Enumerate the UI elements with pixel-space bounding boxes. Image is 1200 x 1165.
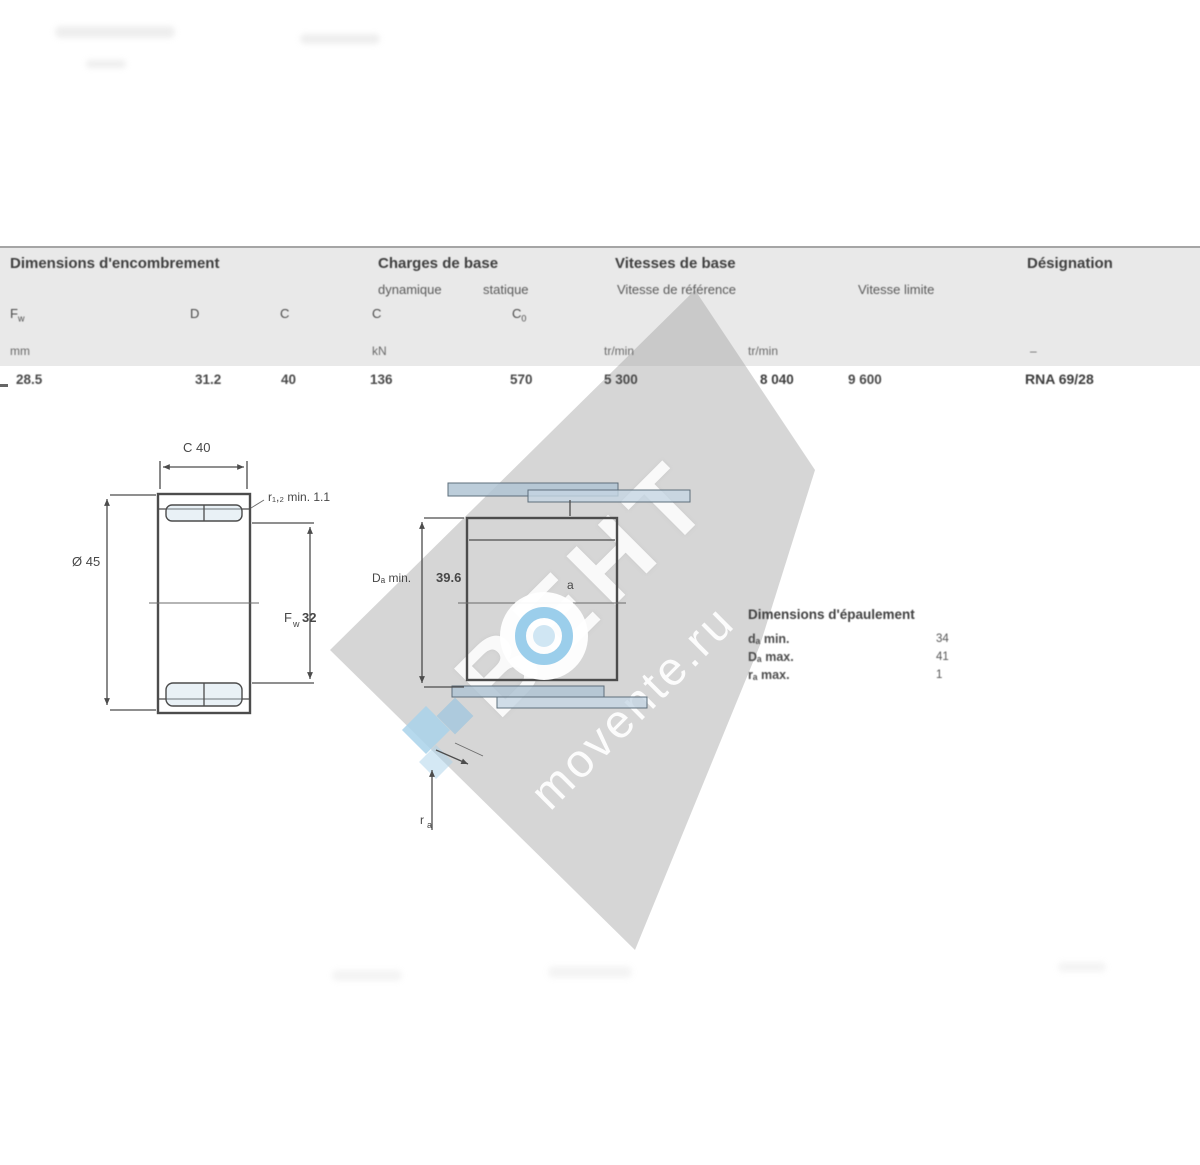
scan-smudge [1058, 962, 1106, 972]
abutment-title: Dimensions d'épaulement [748, 607, 915, 622]
abutment-row-label: rₐ max. [748, 668, 790, 682]
scan-smudge [300, 34, 380, 44]
abutment-row-label: dₐ min. [748, 632, 790, 646]
abutment-dimensions-block: Dimensions d'épaulement dₐ min. 34 Dₐ ma… [0, 0, 1200, 1165]
abutment-row-value: 1 [936, 669, 942, 681]
scan-smudge [86, 60, 126, 68]
abutment-row-value: 34 [936, 633, 949, 645]
movente-ring-logo-icon [500, 592, 588, 680]
scan-smudge [332, 970, 402, 981]
abutment-row-label: Dₐ max. [748, 650, 794, 664]
scan-smudge [548, 966, 632, 978]
abutment-row-value: 41 [936, 651, 949, 663]
datasheet-page: ВЕНТ movente.ru Dimensions d'encombremen… [0, 0, 1200, 1165]
scan-smudge [55, 26, 175, 38]
